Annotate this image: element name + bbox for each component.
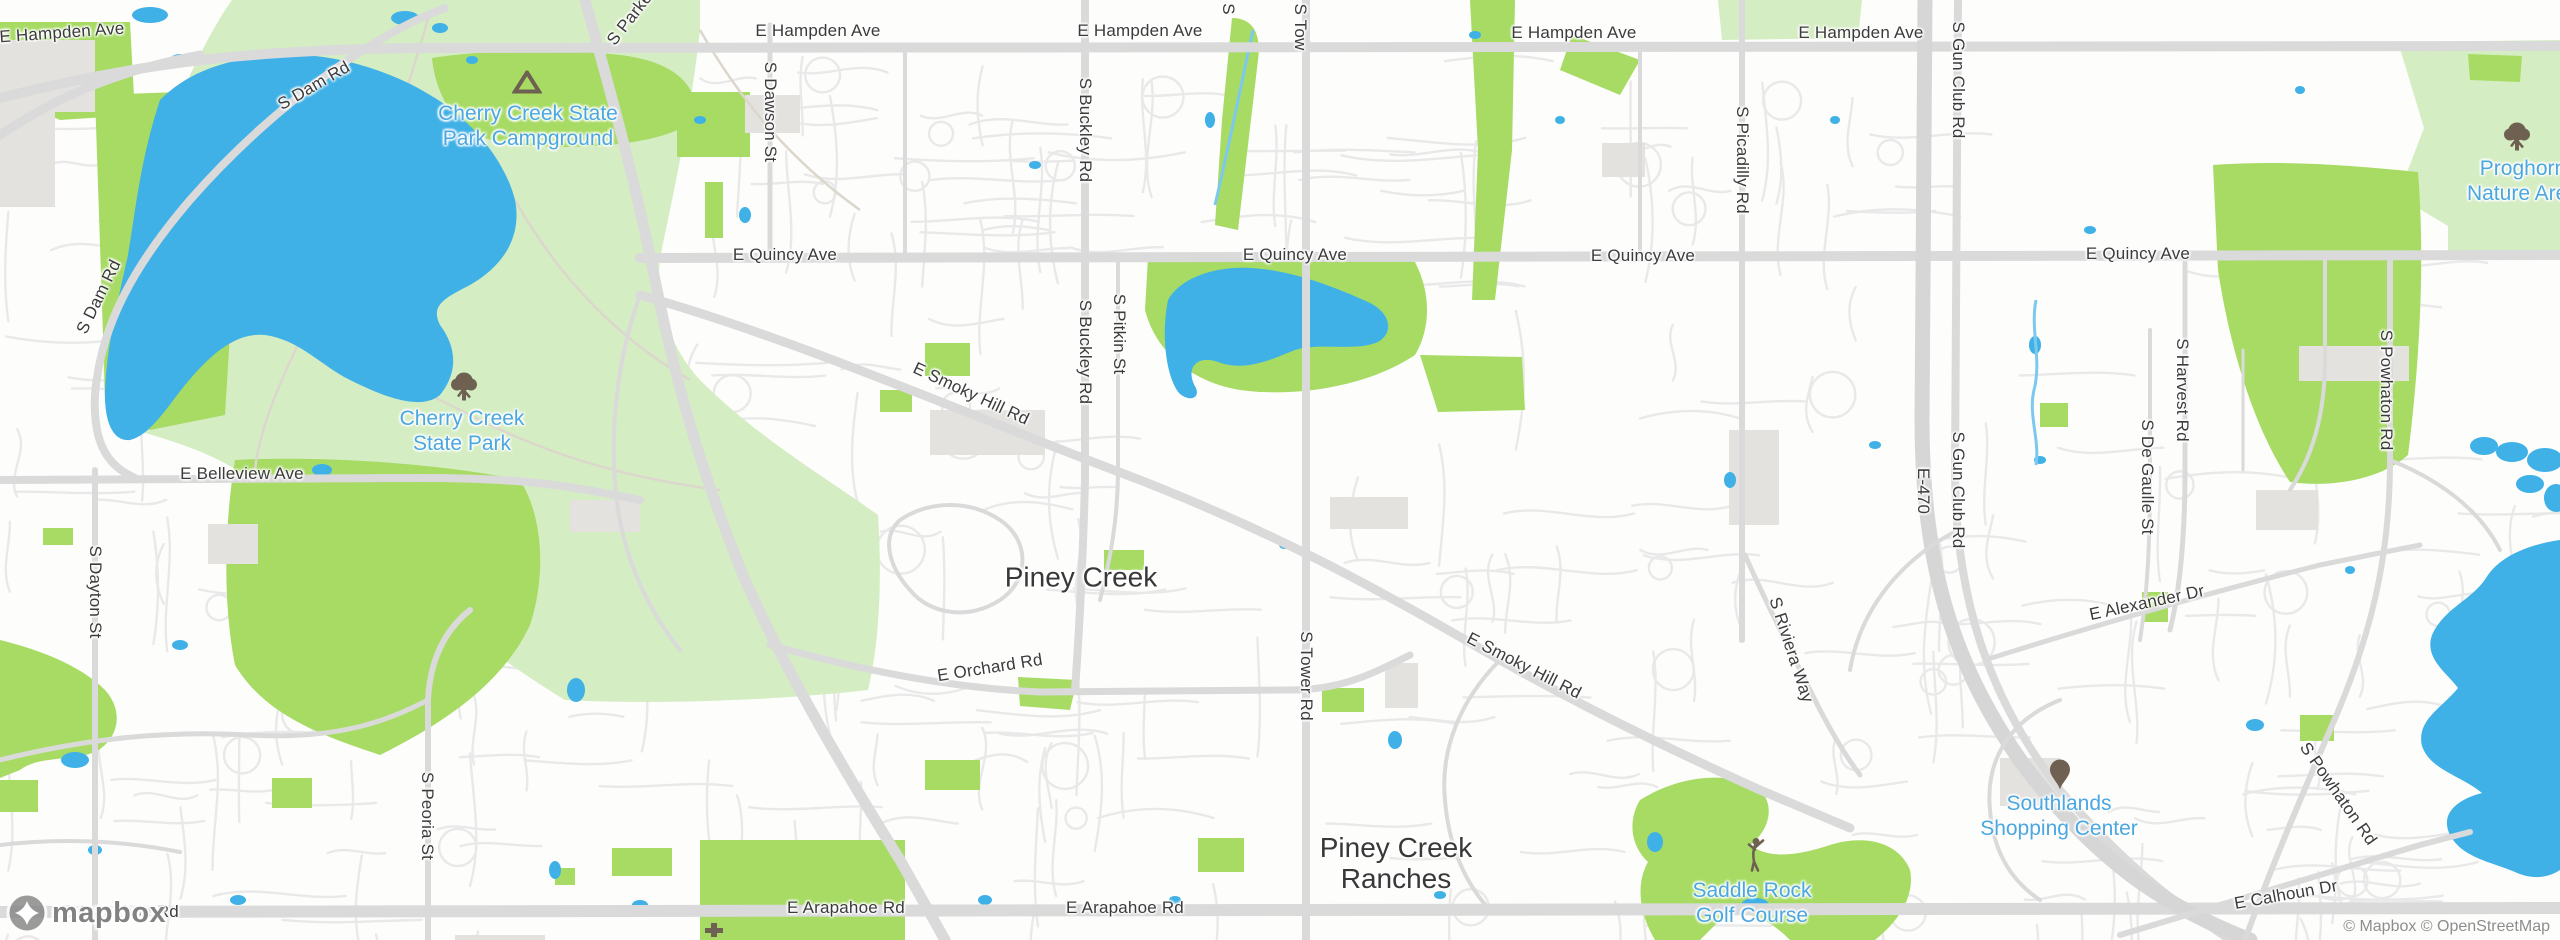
creek-layer xyxy=(1215,30,2037,465)
road-e-quincy-ave xyxy=(640,255,2560,258)
aurora-reservoir xyxy=(2421,540,2560,877)
road-s-harvest-rd xyxy=(2170,258,2185,630)
mapbox-logo[interactable]: mapbox xyxy=(6,892,166,934)
map-canvas[interactable]: E Hampden AveE Hampden AveE Hampden AveE… xyxy=(0,0,2560,940)
road-e-alexander-dr xyxy=(1985,545,2420,660)
mapbox-logo-text: mapbox xyxy=(52,897,166,930)
map-attribution[interactable]: © Mapbox © OpenStreetMap xyxy=(2343,918,2550,936)
road-e-470 xyxy=(1922,0,2250,940)
map-geometry xyxy=(0,0,2560,940)
road-s-pitkin-st xyxy=(1100,262,1118,600)
road-s-riviera-way xyxy=(1745,555,1860,775)
church-icon xyxy=(701,921,727,940)
road-s-gun-club-rd xyxy=(1955,0,2230,940)
mapbox-logo-icon xyxy=(6,892,48,934)
